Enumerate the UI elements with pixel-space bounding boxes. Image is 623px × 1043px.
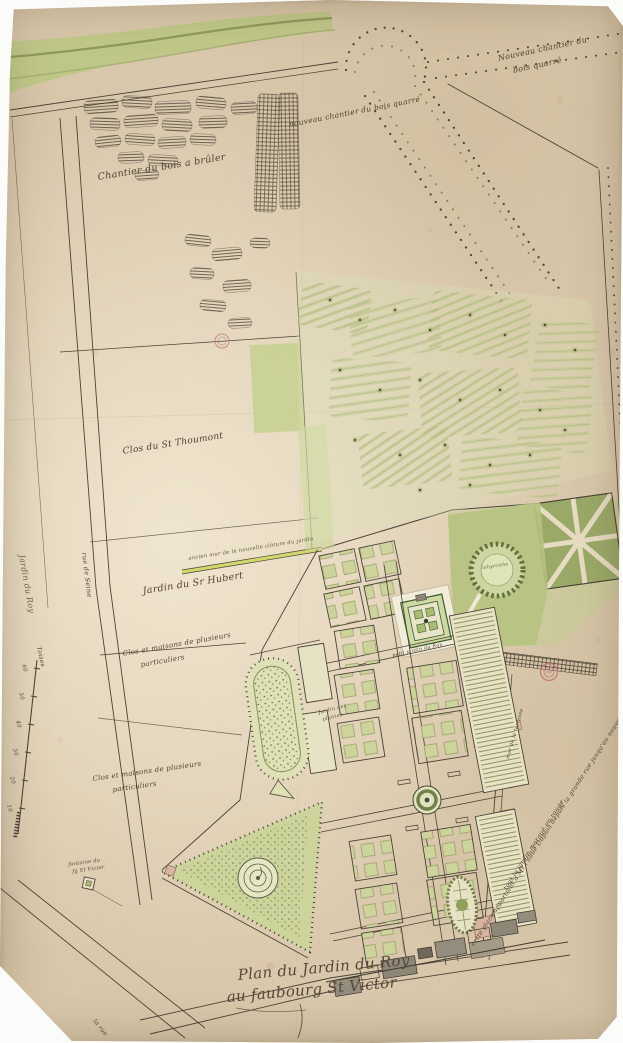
scale-bar [15, 660, 40, 838]
title-flourish [236, 1004, 306, 1038]
woodpile-hatching [84, 93, 300, 329]
upper-left-parterres [319, 541, 406, 628]
label-corner-number: 13143 [26, 1028, 43, 1034]
map-artwork [0, 0, 623, 1043]
star-bosquet [534, 493, 623, 589]
fountain-marker [82, 877, 95, 890]
map-sheet: Nouveau chantier du bois quarré nouveau … [0, 0, 623, 1043]
triangle-parterre [162, 802, 322, 952]
paper-background: Nouveau chantier du bois quarré nouveau … [0, 0, 623, 1043]
central-fountain [398, 771, 468, 831]
spiral-mound [238, 858, 278, 898]
